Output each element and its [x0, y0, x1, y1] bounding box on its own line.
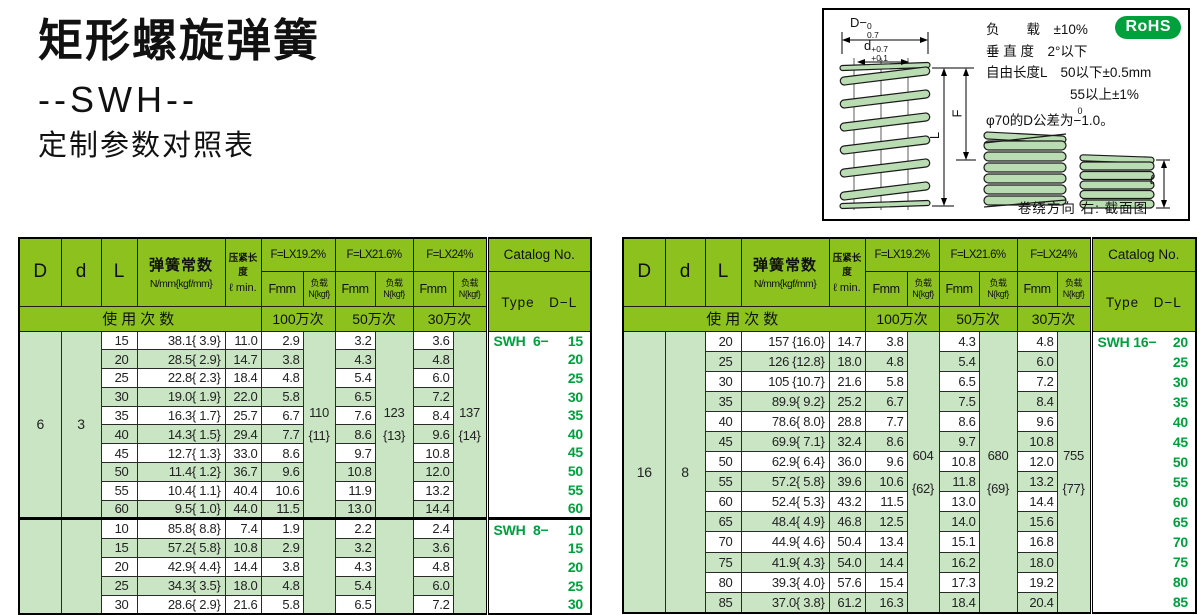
cell-F-100: 5.8: [261, 387, 303, 406]
cell-spring-constant: 42.9{ 4.4}: [137, 557, 225, 576]
cell-load-50: 680{69}: [979, 331, 1017, 613]
cell-compressed-length: 44.0: [225, 500, 261, 519]
cell-L: 30: [101, 387, 137, 406]
cell-F-50: 16.2: [939, 552, 979, 572]
cell-L: 25: [101, 369, 137, 388]
cell-F-50: 9.7: [939, 431, 979, 451]
col-header-d: d: [61, 238, 101, 306]
catalog-cell: SWH 8−1015202530: [487, 519, 591, 614]
cell-F-100: 9.6: [261, 462, 303, 481]
cell-F-30: 2.4: [413, 519, 453, 538]
cell-spring-constant: 89.9{ 9.2}: [741, 391, 829, 411]
cell-F-100: 10.6: [865, 472, 907, 492]
cell-spring-constant: 19.0{ 1.9}: [137, 387, 225, 406]
cell-F-50: 4.3: [939, 331, 979, 351]
cell-spring-constant: 69.9{ 7.1}: [741, 431, 829, 451]
col-header-load-1: 负载N{kgf}: [303, 271, 335, 306]
cell-spring-constant: 12.7{ 1.3}: [137, 444, 225, 463]
cell-F-30: 14.4: [1017, 492, 1057, 512]
cycles-50: 50万次: [939, 306, 1017, 331]
cell-F-30: 4.8: [413, 350, 453, 369]
dimension-l-label: ℓ: [1149, 173, 1155, 189]
cell-F-100: 16.3: [865, 592, 907, 612]
cell-F-100: 4.8: [261, 369, 303, 388]
cell-spring-constant: 37.0{ 3.8}: [741, 592, 829, 612]
cell-load-100: 110{11}: [303, 331, 335, 519]
cell-L: 40: [705, 411, 741, 431]
title-block: 矩形螺旋弹簧 --SWH-- 定制参数对照表: [38, 16, 320, 163]
col-header-Fmm-3: Fmm: [1017, 271, 1057, 306]
col-header-compressed-length: 压紧长度 ℓ min.: [225, 238, 261, 306]
cell-spring-constant: 62.9{ 6.4}: [741, 452, 829, 472]
cell-L: 65: [705, 512, 741, 532]
table-row: 16820157 {16.0}14.73.8604{62}4.3680{69}4…: [623, 331, 1196, 351]
cell-F-100: 6.7: [865, 391, 907, 411]
cell-L: 15: [101, 331, 137, 350]
cell-load-30: 137{14}: [453, 331, 487, 519]
spec-free-length: 自由长度L 50以下±0.5mm: [986, 62, 1186, 84]
cell-compressed-length: 18.0: [225, 576, 261, 595]
cell-D: [19, 519, 61, 614]
cell-F-100: 10.6: [261, 481, 303, 500]
cell-D: 16: [623, 331, 665, 613]
cell-L: 35: [101, 406, 137, 425]
cell-F-30: 6.0: [413, 576, 453, 595]
diagram-caption: 卷绕方向 右: 截面图: [982, 197, 1184, 217]
model-code: --SWH--: [38, 80, 320, 120]
cell-L: 20: [101, 557, 137, 576]
cell-F-30: 8.4: [1017, 391, 1057, 411]
cell-F-100: 11.5: [261, 500, 303, 519]
cell-spring-constant: 11.4{ 1.2}: [137, 462, 225, 481]
cell-F-30: 6.0: [413, 369, 453, 388]
cell-load-100: 604{62}: [907, 331, 939, 613]
cell-L: 40: [101, 425, 137, 444]
cell-F-30: 12.0: [413, 462, 453, 481]
cell-F-100: 14.4: [865, 552, 907, 572]
cell-F-100: 12.5: [865, 512, 907, 532]
cell-F-100: 2.9: [261, 331, 303, 350]
cell-spring-constant: 78.6{ 8.0}: [741, 411, 829, 431]
cell-spring-constant: 126 {12.8}: [741, 351, 829, 371]
cell-compressed-length: 43.2: [829, 492, 865, 512]
cell-spring-constant: 57.2{ 5.8}: [741, 472, 829, 492]
cycles-50: 50万次: [335, 306, 413, 331]
cell-F-100: 1.9: [261, 519, 303, 538]
cell-compressed-length: 10.8: [225, 538, 261, 557]
col-header-D: D: [19, 238, 61, 306]
cell-load-30: 755{77}: [1057, 331, 1091, 613]
cell-spring-constant: 48.4{ 4.9}: [741, 512, 829, 532]
usage-header: 使用次数: [623, 306, 865, 331]
cell-spring-constant: 28.6{ 2.9}: [137, 595, 225, 614]
cell-compressed-length: 46.8: [829, 512, 865, 532]
cell-compressed-length: 54.0: [829, 552, 865, 572]
cell-d: 8: [665, 331, 705, 613]
cell-spring-constant: 85.8{ 8.8}: [137, 519, 225, 538]
cell-spring-constant: 105 {10.7}: [741, 371, 829, 391]
cell-L: 30: [705, 371, 741, 391]
cell-L: 25: [101, 576, 137, 595]
cell-L: 55: [101, 481, 137, 500]
col-header-type: Type D−L: [1091, 271, 1196, 331]
cell-F-50: 5.4: [335, 369, 375, 388]
cell-D: 6: [19, 331, 61, 519]
cell-F-30: 10.8: [413, 444, 453, 463]
cell-L: 15: [101, 538, 137, 557]
cell-compressed-length: 39.6: [829, 472, 865, 492]
cell-spring-constant: 16.3{ 1.7}: [137, 406, 225, 425]
cell-spring-constant: 9.5{ 1.0}: [137, 500, 225, 519]
cell-L: 45: [101, 444, 137, 463]
cell-F-30: 16.8: [1017, 532, 1057, 552]
cell-F-100: 3.8: [261, 350, 303, 369]
cell-compressed-length: 18.4: [225, 369, 261, 388]
cell-F-50: 4.3: [335, 350, 375, 369]
cell-F-30: 18.0: [1017, 552, 1057, 572]
cell-L: 20: [705, 331, 741, 351]
cell-spring-constant: 22.8{ 2.3}: [137, 369, 225, 388]
cell-compressed-length: 57.6: [829, 572, 865, 592]
col-header-Fmm-1: Fmm: [261, 271, 303, 306]
col-header-Fmm-2: Fmm: [335, 271, 375, 306]
cell-compressed-length: 36.0: [829, 452, 865, 472]
cell-F-100: 5.8: [261, 595, 303, 614]
cell-L: 50: [101, 462, 137, 481]
cell-F-50: 7.6: [335, 406, 375, 425]
usage-header: 使用次数: [19, 306, 261, 331]
cell-F-30: 9.6: [413, 425, 453, 444]
col-header-spring-constant: 弹簧常数 N/mm{kgf/mm}: [741, 238, 829, 306]
cell-spring-constant: 38.1{ 3.9}: [137, 331, 225, 350]
cell-F-100: 4.8: [261, 576, 303, 595]
cell-L: 25: [705, 351, 741, 371]
parameter-table-left: D d L 弹簧常数 N/mm{kgf/mm} 压紧长度 ℓ min. F=LX…: [18, 237, 592, 615]
col-header-F24: F=LX24%: [413, 238, 487, 271]
col-header-load-2: 负载N{kgf}: [979, 271, 1017, 306]
cell-F-30: 3.6: [413, 331, 453, 350]
cell-spring-constant: 41.9{ 4.3}: [741, 552, 829, 572]
cell-F-100: 3.8: [865, 331, 907, 351]
cell-L: 75: [705, 552, 741, 572]
cell-L: 30: [101, 595, 137, 614]
col-header-L: L: [705, 238, 741, 306]
cell-d: [61, 519, 101, 614]
cell-spring-constant: 57.2{ 5.8}: [137, 538, 225, 557]
col-header-L: L: [101, 238, 137, 306]
dimension-D-label: D−00.7: [850, 15, 879, 40]
cell-F-100: 5.8: [865, 371, 907, 391]
cell-F-50: 17.3: [939, 572, 979, 592]
cell-F-50: 7.5: [939, 391, 979, 411]
dimension-F-label: F: [949, 110, 964, 118]
cell-F-30: 9.6: [1017, 411, 1057, 431]
cell-F-30: 14.4: [413, 500, 453, 519]
col-header-type: Type D−L: [487, 271, 591, 331]
cell-L: 55: [705, 472, 741, 492]
page-subtitle: 定制参数对照表: [38, 131, 320, 163]
catalog-page: { "page": { "title": "矩形螺旋弹簧", "model": …: [0, 0, 1200, 600]
cell-F-30: 4.8: [413, 557, 453, 576]
col-header-F19: F=LX19.2%: [865, 238, 939, 271]
cell-compressed-length: 18.0: [829, 351, 865, 371]
cell-F-30: 13.2: [413, 481, 453, 500]
cell-L: 60: [101, 500, 137, 519]
cell-compressed-length: 21.6: [225, 595, 261, 614]
cell-compressed-length: 61.2: [829, 592, 865, 612]
cell-F-100: 3.8: [261, 557, 303, 576]
cell-F-100: 15.4: [865, 572, 907, 592]
col-header-F19: F=LX19.2%: [261, 238, 335, 271]
cell-F-100: 4.8: [865, 351, 907, 371]
cell-compressed-length: 28.8: [829, 411, 865, 431]
cell-load-100: [303, 519, 335, 614]
cell-F-30: 6.0: [1017, 351, 1057, 371]
cell-F-30: 19.2: [1017, 572, 1057, 592]
cell-spring-constant: 44.9{ 4.6}: [741, 532, 829, 552]
cell-F-50: 10.8: [335, 462, 375, 481]
col-header-catalog: Catalog No.: [487, 238, 591, 271]
cell-F-50: 6.5: [335, 595, 375, 614]
cell-F-30: 7.2: [413, 387, 453, 406]
cell-compressed-length: 11.0: [225, 331, 261, 350]
cell-L: 50: [705, 452, 741, 472]
cell-F-30: 10.8: [1017, 431, 1057, 451]
col-header-F24: F=LX24%: [1017, 238, 1091, 271]
cell-F-50: 18.4: [939, 592, 979, 612]
cycles-100: 100万次: [261, 306, 335, 331]
cell-L: 45: [705, 431, 741, 451]
cell-F-50: 4.3: [335, 557, 375, 576]
cell-F-100: 13.4: [865, 532, 907, 552]
cell-compressed-length: 21.6: [829, 371, 865, 391]
cell-F-100: 7.7: [261, 425, 303, 444]
col-header-catalog: Catalog No.: [1091, 238, 1196, 271]
cell-F-30: 20.4: [1017, 592, 1057, 612]
cell-compressed-length: 33.0: [225, 444, 261, 463]
spec-perpendicularity: 垂 直 度 2°以下: [986, 41, 1186, 63]
cell-load-30: [453, 519, 487, 614]
cell-load-50: 123{13}: [375, 331, 413, 519]
col-header-compressed-length: 压紧长度 ℓ min.: [829, 238, 865, 306]
cell-compressed-length: 7.4: [225, 519, 261, 538]
spec-free-length-2: 55以上±1%: [986, 84, 1186, 106]
cell-F-30: 7.2: [413, 595, 453, 614]
cell-compressed-length: 14.7: [829, 331, 865, 351]
cell-L: 60: [705, 492, 741, 512]
cell-spring-constant: 52.4{ 5.3}: [741, 492, 829, 512]
cell-F-50: 11.8: [939, 472, 979, 492]
cycles-100: 100万次: [865, 306, 939, 331]
spring-diagram-box: D−00.7 d+0.7+0.1 L F ℓ 负 载 ±10% 垂 直 度 2°…: [822, 8, 1190, 221]
cell-d: 3: [61, 331, 101, 519]
col-header-load-2: 负载N{kgf}: [375, 271, 413, 306]
cell-spring-constant: 10.4{ 1.1}: [137, 481, 225, 500]
cell-F-100: 8.6: [261, 444, 303, 463]
rohs-badge: RoHS: [1115, 16, 1181, 39]
table-row: 1085.8{ 8.8}7.41.92.22.4SWH 8−1015202530: [19, 519, 591, 538]
col-header-Fmm-1: Fmm: [865, 271, 907, 306]
cell-F-50: 13.0: [939, 492, 979, 512]
spec-d70-tolerance: φ70的D公差为0−1.0。: [986, 110, 1186, 132]
col-header-D: D: [623, 238, 665, 306]
cell-spring-constant: 14.3{ 1.5}: [137, 425, 225, 444]
cell-F-50: 8.6: [939, 411, 979, 431]
cell-L: 20: [101, 350, 137, 369]
cell-F-100: 6.7: [261, 406, 303, 425]
col-header-F21: F=LX21.6%: [939, 238, 1017, 271]
col-header-spring-constant: 弹簧常数 N/mm{kgf/mm}: [137, 238, 225, 306]
cell-F-50: 10.8: [939, 452, 979, 472]
col-header-Fmm-2: Fmm: [939, 271, 979, 306]
cell-F-100: 7.7: [865, 411, 907, 431]
cell-F-30: 3.6: [413, 538, 453, 557]
cell-F-30: 13.2: [1017, 472, 1057, 492]
cell-F-30: 12.0: [1017, 452, 1057, 472]
cell-F-100: 2.9: [261, 538, 303, 557]
cell-F-100: 9.6: [865, 452, 907, 472]
cell-compressed-length: 29.4: [225, 425, 261, 444]
cell-L: 70: [705, 532, 741, 552]
cycles-30: 30万次: [413, 306, 487, 331]
catalog-cell: SWH 16−2025303540455055606570758085: [1091, 331, 1196, 613]
col-header-Fmm-3: Fmm: [413, 271, 453, 306]
cell-F-50: 13.0: [335, 500, 375, 519]
cell-F-50: 8.6: [335, 425, 375, 444]
cell-F-50: 5.4: [939, 351, 979, 371]
cell-F-30: 4.8: [1017, 331, 1057, 351]
cell-compressed-length: 36.7: [225, 462, 261, 481]
cell-compressed-length: 14.4: [225, 557, 261, 576]
cell-F-100: 11.5: [865, 492, 907, 512]
cell-F-30: 7.2: [1017, 371, 1057, 391]
cell-F-50: 9.7: [335, 444, 375, 463]
col-header-F21: F=LX21.6%: [335, 238, 413, 271]
cell-spring-constant: 157 {16.0}: [741, 331, 829, 351]
cell-compressed-length: 14.7: [225, 350, 261, 369]
cell-L: 85: [705, 592, 741, 612]
cell-compressed-length: 32.4: [829, 431, 865, 451]
cell-load-50: [375, 519, 413, 614]
cell-compressed-length: 25.2: [829, 391, 865, 411]
cell-spring-constant: 39.3{ 4.0}: [741, 572, 829, 592]
cell-compressed-length: 40.4: [225, 481, 261, 500]
cell-L: 80: [705, 572, 741, 592]
cell-F-50: 5.4: [335, 576, 375, 595]
cell-L: 35: [705, 391, 741, 411]
cell-F-50: 6.5: [939, 371, 979, 391]
cycles-30: 30万次: [1017, 306, 1091, 331]
col-header-load-3: 负载N{kgf}: [1057, 271, 1091, 306]
cell-F-50: 6.5: [335, 387, 375, 406]
cell-F-100: 8.6: [865, 431, 907, 451]
col-header-d: d: [665, 238, 705, 306]
cell-spring-constant: 34.3{ 3.5}: [137, 576, 225, 595]
cell-F-50: 15.1: [939, 532, 979, 552]
cell-F-30: 8.4: [413, 406, 453, 425]
cell-F-50: 14.0: [939, 512, 979, 532]
col-header-load-3: 负载N{kgf}: [453, 271, 487, 306]
cell-compressed-length: 25.7: [225, 406, 261, 425]
dimension-L-label: L: [927, 132, 942, 139]
col-header-load-1: 负载N{kgf}: [907, 271, 939, 306]
parameter-table-right: D d L 弹簧常数 N/mm{kgf/mm} 压紧长度 ℓ min. F=LX…: [622, 237, 1197, 614]
dimension-d-label: d+0.7+0.1: [864, 38, 888, 63]
page-title: 矩形螺旋弹簧: [38, 16, 320, 66]
table-row: 631538.1{ 3.9}11.02.9110{11}3.2123{13}3.…: [19, 331, 591, 350]
cell-F-30: 15.6: [1017, 512, 1057, 532]
catalog-cell: SWH 6−15202530354045505560: [487, 331, 591, 519]
cell-F-50: 11.9: [335, 481, 375, 500]
cell-F-50: 2.2: [335, 519, 375, 538]
cell-L: 10: [101, 519, 137, 538]
cell-compressed-length: 50.4: [829, 532, 865, 552]
cell-F-50: 3.2: [335, 331, 375, 350]
cell-F-50: 3.2: [335, 538, 375, 557]
cell-compressed-length: 22.0: [225, 387, 261, 406]
cell-spring-constant: 28.5{ 2.9}: [137, 350, 225, 369]
